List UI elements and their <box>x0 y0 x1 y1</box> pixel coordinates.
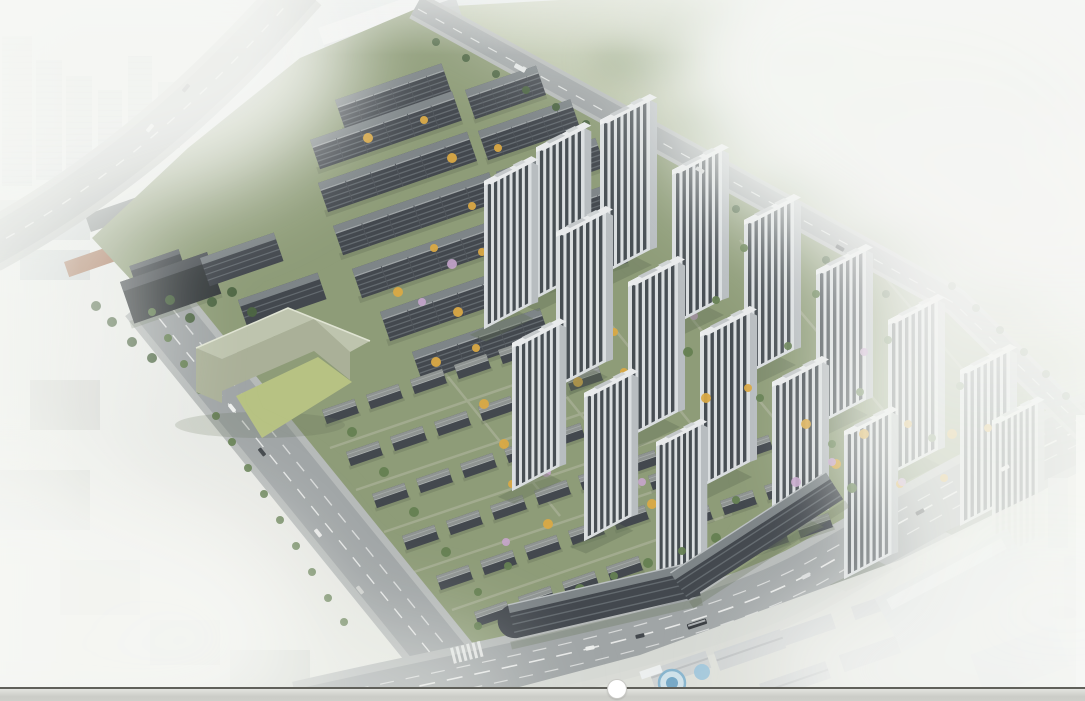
slider-handle-dot[interactable] <box>608 680 626 698</box>
rendering-viewport <box>0 0 1085 701</box>
bottom-scrollbar-track[interactable] <box>0 687 1085 701</box>
fog-overlay <box>0 0 1085 701</box>
aerial-rendering-canvas <box>0 0 1085 701</box>
